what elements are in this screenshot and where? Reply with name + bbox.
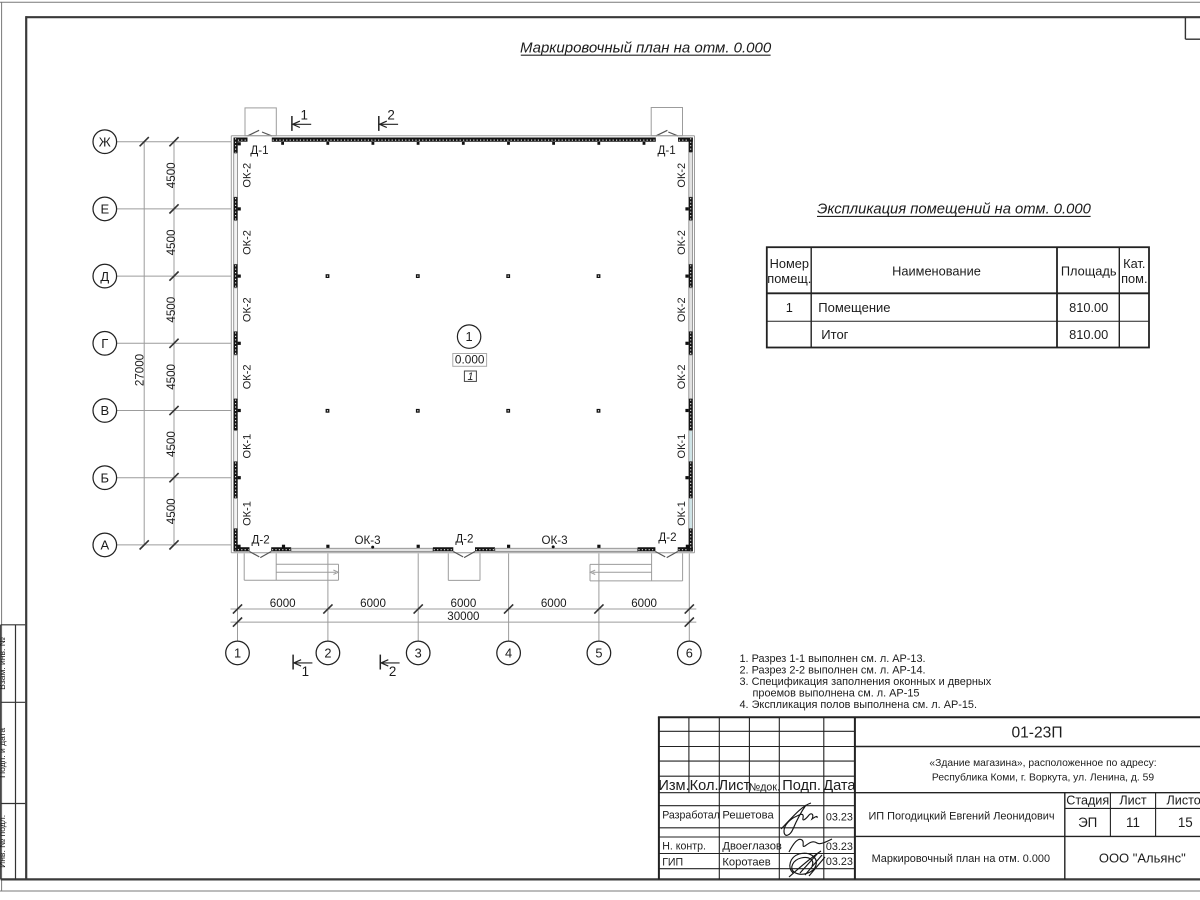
svg-text:4500: 4500 [165, 230, 178, 256]
svg-text:1: 1 [467, 371, 473, 383]
svg-text:ОК-3: ОК-3 [541, 534, 567, 547]
svg-text:Маркировочный план на отм. 0.0: Маркировочный план на отм. 0.000 [520, 40, 772, 57]
svg-text:Ж: Ж [99, 134, 111, 149]
svg-text:Экспликация помещений на отм.: Экспликация помещений на отм. 0.000 [817, 202, 1091, 218]
svg-text:Д-2: Д-2 [658, 531, 676, 544]
svg-text:ГИП: ГИП [662, 856, 683, 868]
svg-text:5: 5 [595, 646, 602, 661]
svg-text:Наименование: Наименование [892, 263, 981, 278]
svg-text:ЭП: ЭП [1078, 815, 1097, 830]
svg-text:Площадь: Площадь [1061, 263, 1117, 278]
svg-text:3: 3 [415, 646, 422, 661]
svg-text:Республика Коми, г. Воркута, у: Республика Коми, г. Воркута, ул. Ленина,… [932, 772, 1154, 784]
svg-text:4500: 4500 [165, 498, 178, 524]
svg-text:Лист: Лист [1119, 794, 1147, 808]
svg-text:30000: 30000 [447, 610, 479, 623]
svg-text:4500: 4500 [165, 297, 178, 323]
svg-text:Разработал: Разработал [662, 809, 720, 821]
svg-text:2: 2 [387, 108, 394, 123]
svg-text:810.00: 810.00 [1069, 300, 1108, 315]
svg-text:Лист: Лист [719, 778, 751, 794]
svg-text:1: 1 [302, 664, 309, 679]
svg-text:ОК-1: ОК-1 [676, 501, 688, 526]
svg-text:ОК-1: ОК-1 [676, 434, 688, 459]
svg-text:ОК-2: ОК-2 [676, 163, 688, 188]
svg-text:6000: 6000 [360, 597, 386, 610]
svg-text:ИП Погодицкий Евгений Леонидов: ИП Погодицкий Евгений Леонидович [868, 811, 1054, 823]
svg-text:Маркировочный план на отм. 0.0: Маркировочный план на отм. 0.000 [872, 853, 1050, 865]
svg-text:2. Разрез 2-2 выполнен см. л.: 2. Разрез 2-2 выполнен см. л. АР-14. [740, 665, 926, 677]
svg-text:Д: Д [100, 269, 109, 284]
svg-text:Д-1: Д-1 [250, 144, 268, 157]
svg-text:4. Экспликация полов выполнена: 4. Экспликация полов выполнена см. л. АР… [740, 699, 978, 711]
svg-text:Решетова: Решетова [722, 809, 774, 821]
svg-text:3. Спецификация заполнения око: 3. Спецификация заполнения оконных и две… [740, 676, 992, 688]
svg-text:Д-2: Д-2 [455, 533, 473, 546]
svg-text:01-23П: 01-23П [1011, 725, 1062, 742]
svg-text:ОК-2: ОК-2 [241, 230, 253, 255]
svg-text:Кат.: Кат. [1123, 256, 1145, 271]
svg-text:Подп. и дата: Подп. и дата [0, 728, 7, 778]
svg-text:ОК-2: ОК-2 [241, 297, 253, 322]
svg-text:ОК-2: ОК-2 [241, 365, 253, 390]
svg-text:4500: 4500 [165, 364, 178, 390]
svg-text:Б: Б [101, 470, 110, 485]
svg-text:4: 4 [505, 646, 512, 661]
svg-text:03.23: 03.23 [826, 856, 853, 868]
svg-text:ОК-1: ОК-1 [241, 434, 253, 459]
svg-text:810.00: 810.00 [1069, 327, 1108, 342]
svg-text:1: 1 [234, 646, 241, 661]
svg-text:0.000: 0.000 [455, 353, 485, 367]
svg-text:ОК-2: ОК-2 [676, 297, 688, 322]
svg-text:1: 1 [786, 300, 793, 315]
svg-text:Д-1: Д-1 [658, 144, 676, 157]
svg-text:Номер: Номер [770, 256, 809, 271]
svg-text:ОК-2: ОК-2 [676, 365, 688, 390]
svg-text:6000: 6000 [270, 597, 296, 610]
svg-text:Кол.: Кол. [690, 778, 719, 794]
svg-text:15: 15 [1178, 815, 1193, 830]
svg-text:Итог: Итог [821, 327, 848, 342]
svg-text:ОК-3: ОК-3 [354, 534, 380, 547]
svg-text:проемов выполнена см. л. АР-15: проемов выполнена см. л. АР-15 [753, 688, 920, 700]
svg-text:Стадия: Стадия [1066, 794, 1109, 808]
svg-text:Взам. инв. №: Взам. инв. № [0, 637, 7, 690]
svg-text:ОК-2: ОК-2 [241, 163, 253, 188]
svg-text:11: 11 [1126, 815, 1140, 830]
svg-text:помещ.: помещ. [767, 271, 811, 286]
svg-text:А: А [100, 538, 109, 553]
svg-text:6: 6 [686, 646, 693, 661]
svg-text:Д-2: Д-2 [252, 533, 270, 546]
svg-text:Помещение: Помещение [818, 300, 890, 315]
svg-text:03.23: 03.23 [826, 841, 853, 853]
svg-text:Изм.: Изм. [658, 778, 689, 794]
svg-text:Инв. № подл.: Инв. № подл. [0, 815, 7, 868]
svg-text:Г: Г [101, 336, 108, 351]
svg-text:6000: 6000 [541, 597, 567, 610]
svg-text:2: 2 [389, 664, 396, 679]
svg-text:«Здание магазина», расположенн: «Здание магазина», расположенное по адре… [929, 758, 1156, 769]
svg-text:Н. контр.: Н. контр. [662, 841, 706, 853]
svg-text:Листов: Листов [1167, 794, 1200, 808]
svg-text:1: 1 [300, 108, 307, 123]
svg-text:Двоеглазов: Двоеглазов [722, 841, 782, 853]
svg-text:№док.: №док. [749, 782, 780, 794]
svg-text:Коротаев: Коротаев [722, 856, 770, 868]
svg-text:Е: Е [100, 202, 109, 217]
svg-text:1. Разрез 1-1 выполнен см. л.: 1. Разрез 1-1 выполнен см. л. АР-13. [740, 653, 926, 665]
svg-text:Дата: Дата [823, 778, 856, 794]
svg-text:27000: 27000 [133, 354, 146, 386]
svg-text:В: В [100, 403, 109, 418]
svg-text:ООО "Альянс": ООО "Альянс" [1099, 851, 1186, 866]
svg-text:4500: 4500 [165, 431, 178, 457]
svg-text:1: 1 [466, 329, 473, 344]
svg-text:03.23: 03.23 [826, 812, 853, 824]
svg-text:ОК-1: ОК-1 [241, 501, 253, 526]
svg-text:4500: 4500 [165, 162, 178, 188]
svg-text:Подп.: Подп. [782, 778, 821, 794]
svg-text:6000: 6000 [451, 597, 477, 610]
svg-text:6000: 6000 [631, 597, 657, 610]
svg-text:пом.: пом. [1121, 271, 1147, 286]
svg-text:2: 2 [324, 646, 331, 661]
svg-text:ОК-2: ОК-2 [676, 230, 688, 255]
